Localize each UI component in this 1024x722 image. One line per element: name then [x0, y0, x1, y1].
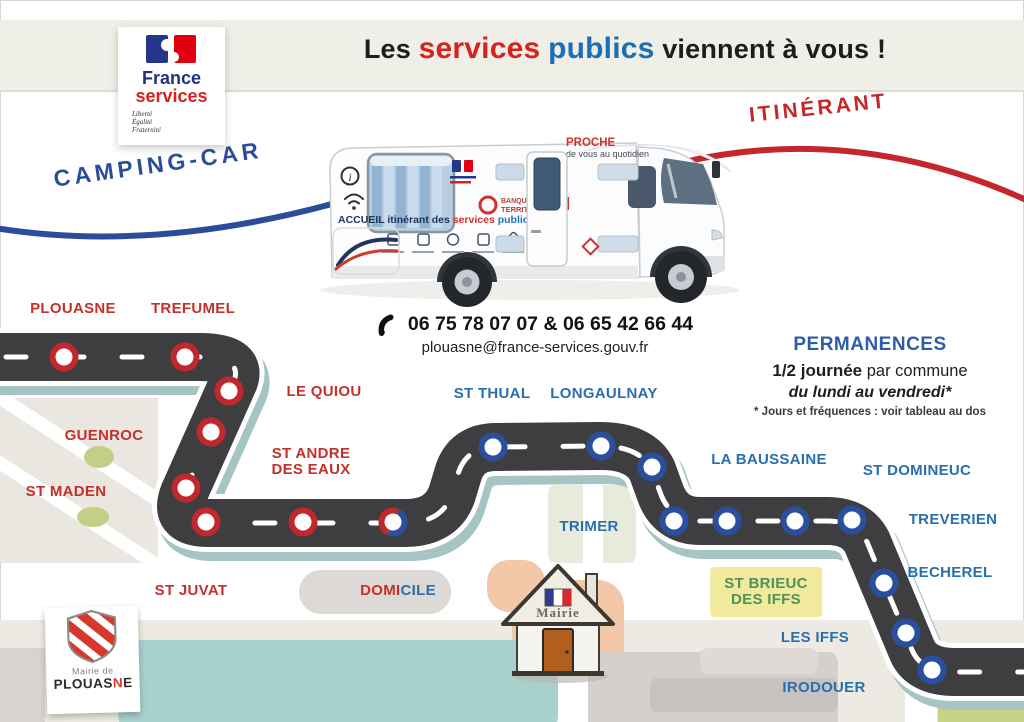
camper-van: i BANQUE des TERRITOIRES PROCHE de vous … — [320, 137, 740, 307]
mairie-plouasne-logo: Mairie de PLOUASNE — [45, 606, 141, 714]
plouasne-shield-icon — [45, 606, 139, 666]
permanences-days: du lundi au vendredi* — [733, 384, 1007, 402]
motto-fraternite: Fraternité — [132, 126, 225, 134]
permanences-per-commune: par commune — [862, 362, 967, 380]
flyer-poster: Les services publics viennent à vous ! F… — [0, 0, 1024, 722]
email-address: plouasne@france-services.gouv.fr — [320, 339, 750, 356]
title-publics: publics — [548, 32, 654, 65]
van-side-text: ACCUEIL itinérant des services publics — [338, 214, 535, 226]
plouasne-name-post: E — [123, 675, 133, 690]
van-proche-subtext: de vous au quotidien — [566, 149, 649, 159]
mairie-label: Mairie — [536, 605, 580, 620]
motto-egalite: Égalité — [132, 118, 225, 126]
permanences-footnote: * Jours et fréquences : voir tableau au … — [733, 406, 1007, 418]
french-flag-icon — [118, 27, 225, 67]
van-door — [527, 152, 567, 266]
permanences-duration: 1/2 journée — [772, 361, 862, 380]
france-services-logo: France services Liberté Égalité Fraterni… — [118, 27, 225, 145]
page-title: Les services publics viennent à vous ! — [295, 32, 955, 66]
blue-swoosh — [0, 204, 332, 236]
svg-text:i: i — [348, 170, 351, 184]
fs-logo-services: services — [118, 87, 225, 105]
title-les: Les — [364, 34, 411, 64]
permanences-title: PERMANENCES — [733, 334, 1007, 356]
mairie-house: Mairie — [503, 566, 613, 683]
motto-liberte: Liberté — [132, 110, 225, 118]
plouasne-name-accent: N — [113, 675, 124, 690]
fs-logo-motto: Liberté Égalité Fraternité — [132, 110, 225, 134]
plouasne-name-pre: PLOUAS — [53, 675, 113, 692]
permanences-block: PERMANENCES 1/2 journée par commune du l… — [733, 334, 1007, 418]
red-swoosh — [684, 149, 1024, 204]
phone-numbers: 06 75 78 07 07 & 06 65 42 66 44 — [408, 313, 693, 336]
title-rest: viennent à vous ! — [662, 34, 886, 64]
info-icon: i — [342, 168, 359, 185]
contact-block: 06 75 78 07 07 & 06 65 42 66 44 plouasne… — [320, 313, 750, 356]
fs-logo-france: France — [118, 69, 225, 87]
plouasne-card-name: PLOUASNE — [46, 675, 139, 692]
phone-icon — [377, 314, 399, 336]
van-proche-text: PROCHE — [566, 137, 616, 149]
title-services: services — [419, 32, 541, 65]
